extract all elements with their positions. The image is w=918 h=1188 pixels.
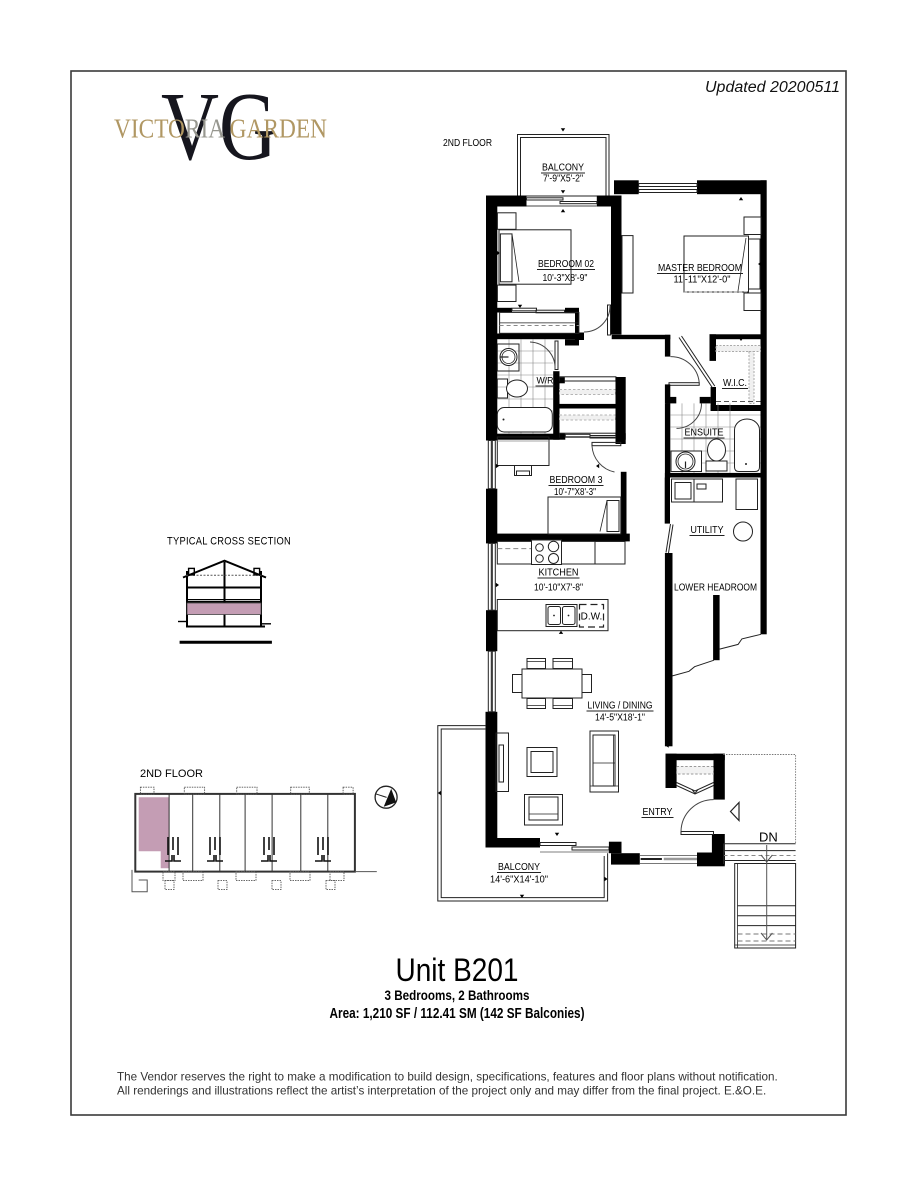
svg-text:ENTRY: ENTRY	[643, 807, 673, 818]
svg-text:Unit B201: Unit B201	[396, 952, 519, 988]
svg-text:2ND FLOOR: 2ND FLOOR	[443, 138, 492, 149]
svg-text:14'-6"X14'-10": 14'-6"X14'-10"	[490, 875, 548, 886]
svg-text:D.W.: D.W.	[581, 612, 603, 623]
svg-text:The Vendor reserves the right: The Vendor reserves the right to make a …	[117, 1071, 778, 1084]
svg-text:10'-10"X7'-8": 10'-10"X7'-8"	[534, 583, 583, 594]
svg-text:11'-11''X12'-0": 11'-11''X12'-0"	[674, 275, 731, 286]
svg-text:10'-7''X8'-3": 10'-7''X8'-3"	[554, 487, 596, 498]
svg-text:UTILITY: UTILITY	[691, 525, 724, 536]
svg-text:Updated 20200511: Updated 20200511	[705, 79, 840, 96]
svg-text:DN: DN	[759, 830, 778, 845]
svg-text:BALCONY: BALCONY	[542, 163, 584, 174]
svg-text:BALCONY: BALCONY	[498, 862, 540, 873]
svg-text:14'-5"X18'-1": 14'-5"X18'-1"	[595, 713, 645, 724]
svg-text:LOWER HEADROOM: LOWER HEADROOM	[674, 583, 757, 594]
svg-text:ENSUITE: ENSUITE	[685, 428, 724, 439]
svg-text:MASTER BEDROOM: MASTER BEDROOM	[658, 263, 742, 274]
svg-text:LIVING / DINING: LIVING / DINING	[588, 701, 653, 712]
svg-text:KITCHEN: KITCHEN	[539, 568, 579, 579]
svg-text:2ND FLOOR: 2ND FLOOR	[140, 768, 203, 780]
svg-text:All renderings and illustratio: All renderings and illustrations reflect…	[117, 1085, 766, 1098]
svg-text:TYPICAL CROSS SECTION: TYPICAL CROSS SECTION	[167, 536, 291, 548]
svg-text:VICTORIA GARDEN: VICTORIA GARDEN	[114, 113, 327, 144]
svg-text:W/R: W/R	[537, 376, 554, 387]
svg-text:Area: 1,210 SF / 112.41 SM (14: Area: 1,210 SF / 112.41 SM (142 SF Balco…	[330, 1006, 585, 1022]
svg-text:BEDROOM 3: BEDROOM 3	[550, 475, 603, 486]
svg-text:3 Bedrooms, 2 Bathrooms: 3 Bedrooms, 2 Bathrooms	[385, 987, 530, 1003]
svg-text:7'-9"X5'-2": 7'-9"X5'-2"	[543, 174, 583, 185]
svg-text:BEDROOM 02: BEDROOM 02	[538, 259, 594, 270]
svg-text:W.I.C.: W.I.C.	[723, 378, 747, 389]
svg-text:10'-3"X8'-9": 10'-3"X8'-9"	[543, 273, 588, 284]
